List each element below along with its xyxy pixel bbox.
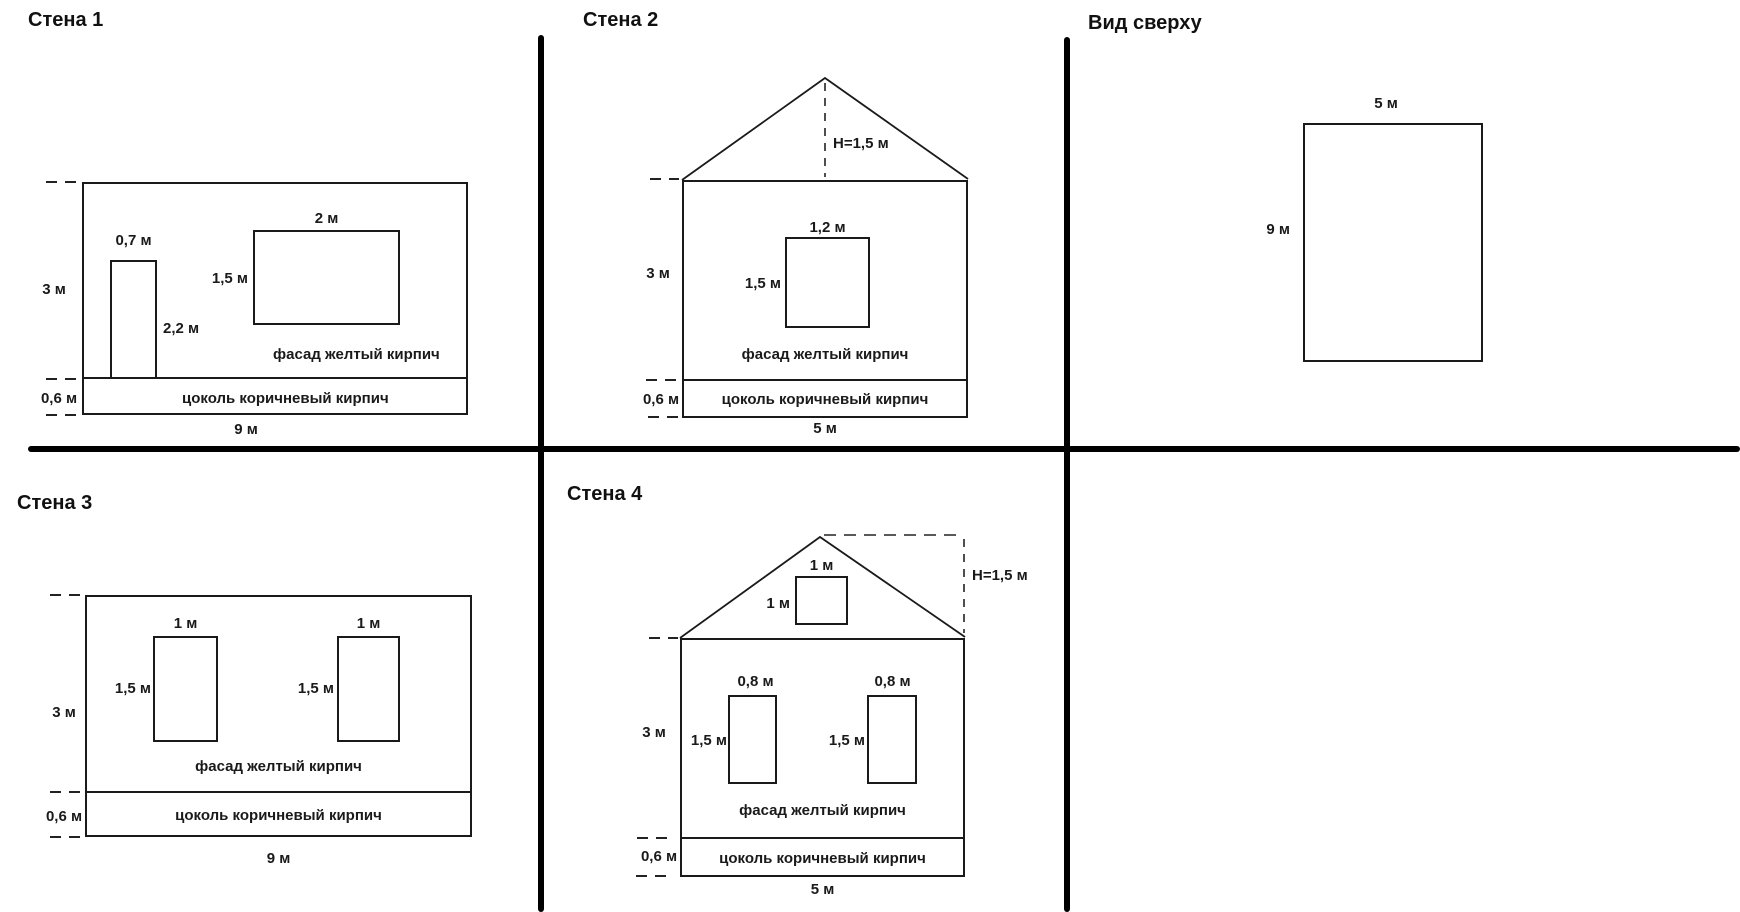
wall2-plinth-line bbox=[682, 379, 968, 381]
top-view-width-label: 5 м bbox=[1356, 96, 1416, 112]
wall3-window1-width-label: 1 м bbox=[155, 616, 216, 632]
wall2-plinth-label: цоколь коричневый кирпич bbox=[682, 392, 968, 408]
wall4-roof-height-label: Н=1,5 м bbox=[972, 568, 1028, 584]
wall4-gable-window bbox=[795, 576, 848, 625]
wall3-window2-width-label: 1 м bbox=[338, 616, 399, 632]
wall4-plinth-label: цоколь коричневый кирпич bbox=[680, 851, 965, 867]
wall3-window-1 bbox=[153, 636, 218, 742]
wall2-title: Стена 2 bbox=[583, 9, 658, 32]
wall2-facade-label: фасад желтый кирпич bbox=[682, 347, 968, 363]
wall2-window-width-label: 1,2 м bbox=[797, 220, 858, 236]
wall4-width-label: 5 м bbox=[680, 882, 965, 898]
wall4-window-2 bbox=[867, 695, 917, 784]
top-view-title: Вид сверху bbox=[1088, 12, 1202, 35]
wall4-gable-window-height-label: 1 м bbox=[740, 596, 790, 612]
top-view-depth-label: 9 м bbox=[1240, 222, 1290, 238]
wall4-plinth-height-label: 0,6 м bbox=[637, 849, 681, 865]
wall4-window1-height-label: 1,5 м bbox=[677, 733, 727, 749]
wall4-window1-width-label: 0,8 м bbox=[725, 674, 786, 690]
wall4-plinth-line bbox=[680, 837, 965, 839]
wall1-window-width-label: 2 м bbox=[296, 211, 357, 227]
wall1-plinth-label: цоколь коричневый кирпич bbox=[182, 391, 389, 407]
wall4-window-1 bbox=[728, 695, 777, 784]
wall1-height-label: 3 м bbox=[36, 282, 72, 298]
wall4-window2-height-label: 1,5 м bbox=[815, 733, 865, 749]
wall2-roof-height-label: Н=1,5 м bbox=[833, 136, 889, 152]
wall4-height-label: 3 м bbox=[636, 725, 672, 741]
wall3-window-2 bbox=[337, 636, 400, 742]
wall1-width-label: 9 м bbox=[216, 422, 276, 438]
wall2-window bbox=[785, 237, 870, 328]
wall3-width-label: 9 м bbox=[85, 851, 472, 867]
wall3-plinth-line bbox=[85, 791, 472, 793]
wall4-title: Стена 4 bbox=[567, 483, 642, 506]
wall4-gable-window-width-label: 1 м bbox=[791, 558, 852, 574]
wall3-plinth-label: цоколь коричневый кирпич bbox=[85, 808, 472, 824]
wall3-plinth-height-label: 0,6 м bbox=[42, 809, 86, 825]
wall1-window-height-label: 1,5 м bbox=[198, 271, 248, 287]
wall1-door bbox=[110, 260, 157, 379]
wall3-window1-height-label: 1,5 м bbox=[101, 681, 151, 697]
wall1-door-width-label: 0,7 м bbox=[103, 233, 164, 249]
wall3-outline bbox=[85, 595, 472, 837]
wall2-plinth-height-label: 0,6 м bbox=[639, 392, 683, 408]
wall2-width-label: 5 м bbox=[682, 421, 968, 437]
wall3-window2-height-label: 1,5 м bbox=[284, 681, 334, 697]
wall4-window2-width-label: 0,8 м bbox=[862, 674, 923, 690]
wall1-door-height-label: 2,2 м bbox=[163, 321, 199, 337]
wall1-plinth-height-label: 0,6 м bbox=[37, 391, 81, 407]
top-view-outline bbox=[1303, 123, 1483, 362]
wall3-height-label: 3 м bbox=[46, 705, 82, 721]
wall3-facade-label: фасад желтый кирпич bbox=[85, 759, 472, 775]
wall2-height-label: 3 м bbox=[640, 266, 676, 282]
wall4-facade-label: фасад желтый кирпич bbox=[680, 803, 965, 819]
wall2-window-height-label: 1,5 м bbox=[731, 276, 781, 292]
wall1-facade-label: фасад желтый кирпич bbox=[273, 347, 440, 363]
wall3-title: Стена 3 bbox=[17, 492, 92, 515]
blueprint-canvas: Стена 1 0,7 м 2,2 м 2 м 1,5 м 3 м 0,6 м … bbox=[0, 0, 1740, 912]
wall1-window bbox=[253, 230, 400, 325]
wall1-title: Стена 1 bbox=[28, 9, 103, 32]
